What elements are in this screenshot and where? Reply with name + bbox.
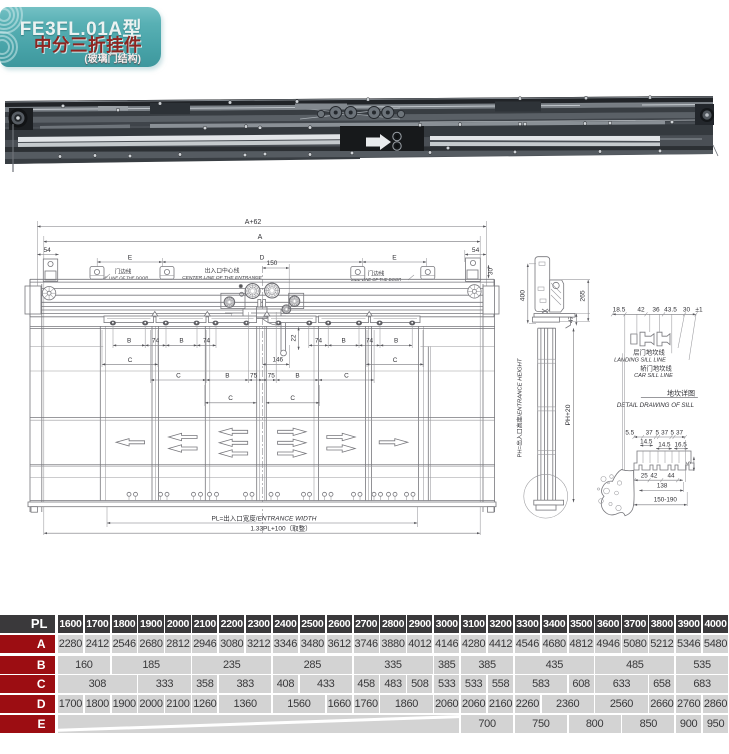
svg-text:5: 5 xyxy=(656,429,660,436)
svg-text:PL=出入口宽度/ENTRANCE WIDTH: PL=出入口宽度/ENTRANCE WIDTH xyxy=(212,513,317,522)
svg-text:C: C xyxy=(228,395,233,402)
svg-text:B: B xyxy=(341,337,345,344)
svg-text:36: 36 xyxy=(652,307,660,314)
svg-text:C: C xyxy=(128,357,133,364)
svg-text:44: 44 xyxy=(667,472,675,479)
svg-text:30: 30 xyxy=(683,307,691,314)
svg-text:出入口中心线: 出入口中心线 xyxy=(205,267,240,275)
svg-text:54: 54 xyxy=(44,247,52,254)
svg-text:42: 42 xyxy=(650,472,658,479)
svg-text:150: 150 xyxy=(267,260,278,267)
svg-text:DETAIL DRAWING OF SILL: DETAIL DRAWING OF SILL xyxy=(617,402,695,409)
svg-text:地坎详图: 地坎详图 xyxy=(667,388,695,397)
svg-text:5.5: 5.5 xyxy=(625,429,634,436)
svg-text:14.5: 14.5 xyxy=(658,441,671,448)
svg-text:146: 146 xyxy=(272,356,283,363)
svg-text:C: C xyxy=(344,372,349,379)
svg-text:E: E xyxy=(128,254,133,261)
svg-text:A: A xyxy=(258,234,263,241)
svg-text:18.5: 18.5 xyxy=(613,307,626,314)
svg-text:37: 37 xyxy=(661,429,669,436)
svg-text:层门地坎线: 层门地坎线 xyxy=(633,348,665,357)
svg-text:42: 42 xyxy=(637,307,645,314)
svg-text:75: 75 xyxy=(250,372,258,379)
svg-text:CENTER LINE OF THE ENTRANCE: CENTER LINE OF THE ENTRANCE xyxy=(182,275,263,281)
svg-text:D: D xyxy=(260,254,265,261)
svg-text:±1: ±1 xyxy=(695,307,703,314)
svg-text:LANDING SILL LINE: LANDING SILL LINE xyxy=(614,358,666,364)
svg-text:74: 74 xyxy=(152,337,160,344)
svg-text:B: B xyxy=(225,372,229,379)
svg-text:1.33PL+100（取整）: 1.33PL+100（取整） xyxy=(250,523,311,532)
svg-text:37: 37 xyxy=(676,429,684,436)
svg-text:B: B xyxy=(127,337,131,344)
svg-text:400: 400 xyxy=(519,290,526,302)
svg-text:PH+20: PH+20 xyxy=(565,404,572,425)
svg-text:25: 25 xyxy=(641,472,649,479)
svg-text:54: 54 xyxy=(472,247,480,254)
svg-text:C: C xyxy=(290,395,295,402)
svg-text:B: B xyxy=(295,372,299,379)
svg-text:CAR SILL LINE: CAR SILL LINE xyxy=(634,373,673,379)
svg-text:5: 5 xyxy=(686,461,692,464)
svg-text:E: E xyxy=(392,254,397,261)
svg-text:C: C xyxy=(176,372,181,379)
svg-text:C: C xyxy=(393,357,398,364)
svg-text:A+62: A+62 xyxy=(245,219,262,226)
svg-text:14.5: 14.5 xyxy=(640,439,653,446)
svg-text:75: 75 xyxy=(268,372,276,379)
svg-text:43.5: 43.5 xyxy=(664,307,677,314)
svg-text:30: 30 xyxy=(487,268,494,275)
svg-text:150-190: 150-190 xyxy=(654,497,678,504)
svg-text:门边线: 门边线 xyxy=(115,268,132,276)
svg-text:138: 138 xyxy=(657,482,668,489)
svg-text:B: B xyxy=(394,337,398,344)
svg-text:B: B xyxy=(179,337,183,344)
svg-text:74: 74 xyxy=(203,337,211,344)
svg-text:37: 37 xyxy=(646,429,654,436)
svg-text:265: 265 xyxy=(580,290,587,302)
svg-text:轿门地坎线: 轿门地坎线 xyxy=(640,364,672,373)
svg-text:PH=出入口高度/ENTRANCE HEIGHT: PH=出入口高度/ENTRANCE HEIGHT xyxy=(516,358,524,457)
svg-text:22: 22 xyxy=(291,334,298,341)
